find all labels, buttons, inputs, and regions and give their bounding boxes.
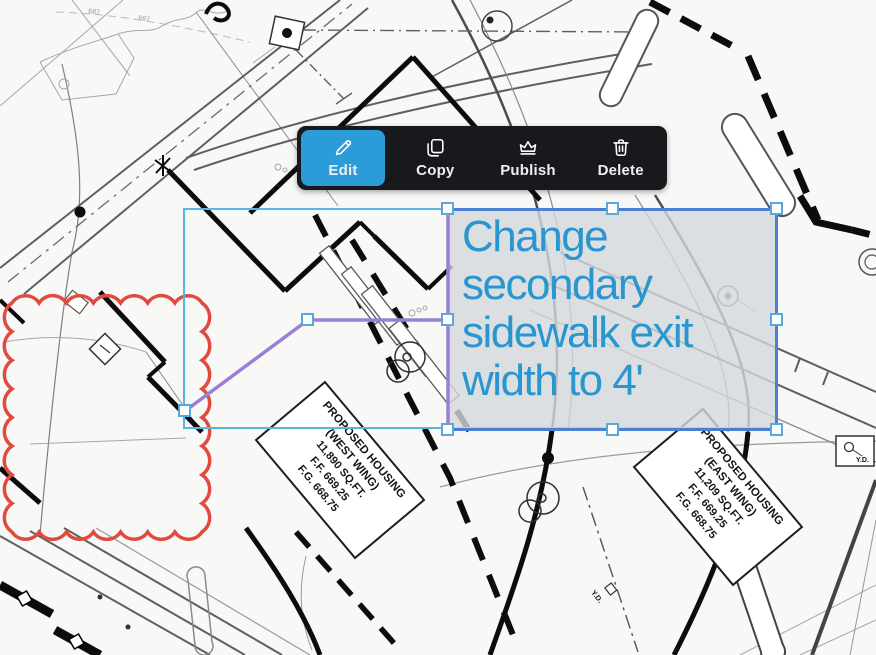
yard-drain-symbol: Y.D. (589, 579, 617, 605)
publish-button-label: Publish (500, 162, 556, 179)
svg-text:Y.D.: Y.D. (856, 457, 869, 464)
leader-endpoint-handle[interactable] (178, 404, 191, 417)
leader-vertex-handle[interactable] (301, 313, 314, 326)
selection-handle-top-right[interactable] (770, 202, 783, 215)
copy-button[interactable]: Copy (389, 126, 482, 190)
revision-cloud (4, 296, 209, 540)
curb-island (600, 10, 658, 106)
selection-handle-bottom-middle[interactable] (606, 423, 619, 436)
curb-island (722, 114, 795, 216)
edit-button-label: Edit (328, 162, 357, 179)
curb-island (187, 567, 213, 655)
selection-handle-middle-right[interactable] (770, 313, 783, 326)
manhole-symbol (482, 11, 512, 41)
callout-text-box[interactable]: Change secondary sidewalk exit width to … (448, 208, 778, 431)
contour-label: 687 (138, 15, 151, 24)
copy-icon (424, 137, 446, 159)
selection-handle-bottom-right[interactable] (770, 423, 783, 436)
edit-button[interactable]: Edit (301, 130, 385, 186)
pencil-icon (332, 137, 354, 159)
selection-handle-bottom-left[interactable] (441, 423, 454, 436)
annotation-toolbar: Edit Copy Publish (297, 126, 667, 190)
publish-button[interactable]: Publish (482, 126, 575, 190)
selection-handle-top-left[interactable] (441, 202, 454, 215)
contour-label: 687 (88, 8, 101, 17)
crown-icon (517, 137, 539, 159)
selection-handle-top-middle[interactable] (606, 202, 619, 215)
delete-button-label: Delete (598, 162, 644, 179)
screenshot-root: Y.D. Y.D. 687 687 PROPOSED HOUSING (WEST… (0, 0, 876, 655)
selection-handle-middle-left[interactable] (441, 313, 454, 326)
callout-text[interactable]: Change secondary sidewalk exit width to … (462, 213, 762, 405)
delete-button[interactable]: Delete (574, 126, 667, 190)
yard-drain-symbol: Y.D. (836, 436, 874, 466)
copy-button-label: Copy (416, 162, 454, 179)
trash-icon (610, 137, 632, 159)
svg-text:Y.D.: Y.D. (589, 588, 605, 604)
